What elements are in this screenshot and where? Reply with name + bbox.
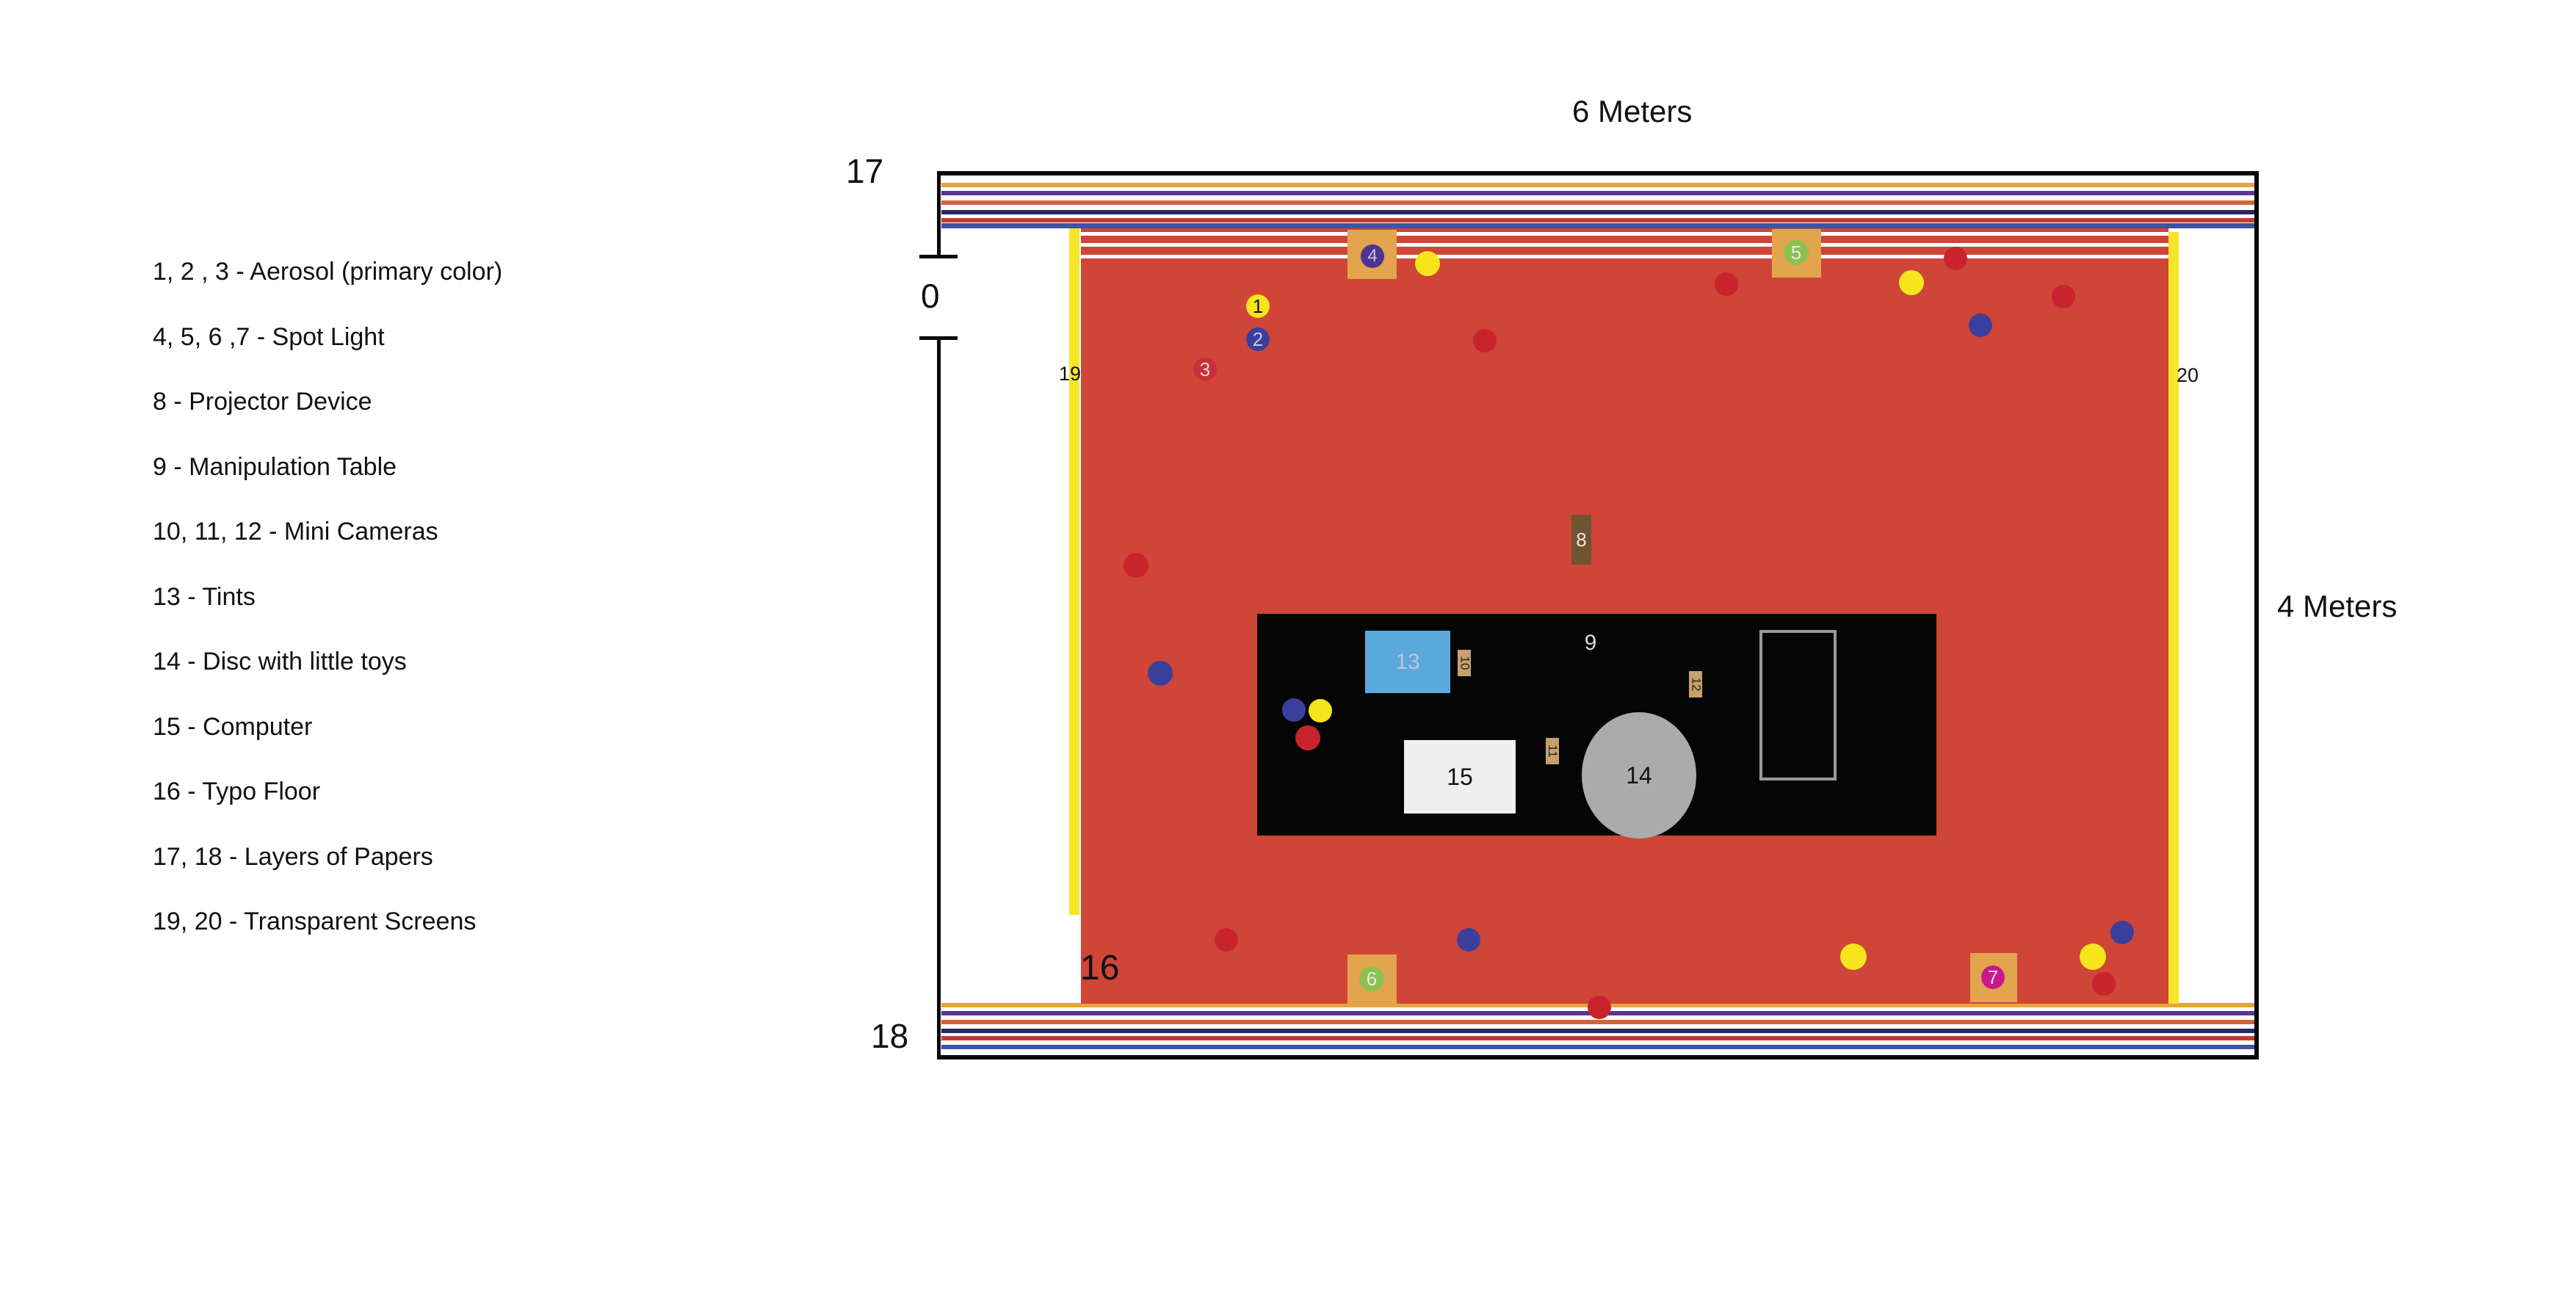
paper-stripe-top-red bbox=[941, 218, 2254, 222]
floor-dot-red bbox=[1473, 329, 1497, 352]
floor-dot-red bbox=[1215, 928, 1238, 952]
paper-stripe-top-purple bbox=[941, 191, 2254, 195]
zero-point-label: 0 bbox=[921, 276, 940, 316]
mini-camera-10: 10 bbox=[1458, 650, 1471, 676]
floor-dot-blue bbox=[1969, 314, 1992, 337]
legend-item-typo-floor: 16 - Typo Floor bbox=[153, 759, 711, 825]
paper-stripe-bottom-navy bbox=[941, 1029, 2254, 1033]
paper-stripe-top-blue bbox=[941, 223, 2254, 228]
screen-19-label: 19 bbox=[1059, 363, 1081, 385]
table-label-9: 9 bbox=[1576, 630, 1605, 656]
table-dot-yellow bbox=[1309, 699, 1332, 722]
legend-item-aerosol: 1, 2 , 3 - Aerosol (primary color) bbox=[153, 239, 711, 305]
floor-white-line-1 bbox=[1081, 232, 2168, 236]
installation-floor-plan-page: { "legend": { "items": [ "1, 2 , 3 - Aer… bbox=[0, 0, 2576, 1315]
paper-stripe-top-salmon bbox=[941, 200, 2254, 205]
transparent-screen-20 bbox=[2168, 232, 2179, 1004]
computer-15: 15 bbox=[1404, 740, 1516, 814]
legend: 1, 2 , 3 - Aerosol (primary color) 4, 5,… bbox=[153, 239, 711, 954]
frame-top-line bbox=[938, 171, 2259, 175]
frame-right-line bbox=[2254, 171, 2259, 1059]
floor-dot-red bbox=[1124, 553, 1148, 578]
table-dot-blue bbox=[1282, 698, 1306, 722]
aerosol-3: 3 bbox=[1193, 358, 1217, 381]
frame-left-line-upper bbox=[937, 171, 941, 258]
floor-dot-red bbox=[1715, 272, 1738, 296]
aerosol-2: 2 bbox=[1246, 327, 1270, 351]
floor-dot-yellow bbox=[1899, 270, 1924, 295]
floor-dot-yellow bbox=[2080, 943, 2106, 970]
transparent-screen-19 bbox=[1069, 228, 1079, 915]
paper-layer-18-label: 18 bbox=[871, 1016, 908, 1056]
floor-dot-blue bbox=[1457, 928, 1480, 952]
paper-stripe-bottom-salmon bbox=[941, 1020, 2254, 1024]
legend-item-disc: 14 - Disc with little toys bbox=[153, 629, 711, 695]
paper-stripe-bottom-red bbox=[941, 1036, 2254, 1040]
typo-floor-16-label: 16 bbox=[1080, 948, 1119, 988]
floor-dot-red bbox=[2092, 972, 2116, 996]
width-dimension-label: 6 Meters bbox=[1572, 94, 1692, 129]
floor-white-line-3 bbox=[1081, 255, 2168, 258]
floor-dot-yellow bbox=[1840, 943, 1867, 970]
aerosol-1: 1 bbox=[1246, 294, 1270, 318]
floor-dot-red bbox=[2052, 285, 2075, 308]
spot-light-4: 4 bbox=[1361, 244, 1384, 268]
legend-item-projector: 8 - Projector Device bbox=[153, 369, 711, 435]
spot-light-6: 6 bbox=[1359, 966, 1384, 991]
spot-light-5: 5 bbox=[1784, 240, 1809, 265]
paper-stripe-bottom-blue bbox=[941, 1045, 2254, 1049]
dimension-tick-upper bbox=[919, 255, 958, 258]
floor-dot-blue bbox=[2110, 921, 2134, 944]
floor-dot-red bbox=[1588, 996, 1611, 1019]
floor-dot-yellow bbox=[1415, 251, 1440, 276]
projector-device-8: 8 bbox=[1571, 515, 1591, 565]
mini-camera-11: 11 bbox=[1546, 738, 1559, 764]
legend-item-computer: 15 - Computer bbox=[153, 695, 711, 760]
frame-left-line-lower bbox=[937, 336, 941, 1059]
disc-with-toys-14: 14 bbox=[1582, 712, 1696, 838]
table-frame-rect bbox=[1759, 630, 1837, 780]
legend-item-tints: 13 - Tints bbox=[153, 565, 711, 630]
paper-stripe-top-orange bbox=[941, 183, 2254, 187]
table-dot-red bbox=[1295, 725, 1320, 750]
mini-camera-12: 12 bbox=[1689, 671, 1702, 698]
screen-20-label: 20 bbox=[2177, 364, 2199, 387]
floor-dot-blue bbox=[1148, 661, 1173, 686]
legend-item-table: 9 - Manipulation Table bbox=[153, 435, 711, 500]
frame-bottom-line bbox=[938, 1055, 2259, 1059]
paper-layer-17-label: 17 bbox=[846, 151, 883, 191]
legend-item-papers: 17, 18 - Layers of Papers bbox=[153, 825, 711, 890]
spot-light-7: 7 bbox=[1981, 966, 2005, 989]
legend-item-cameras: 10, 11, 12 - Mini Cameras bbox=[153, 499, 711, 565]
floor-plan-canvas: 1, 2 , 3 - Aerosol (primary color) 4, 5,… bbox=[0, 0, 2576, 1315]
height-dimension-label: 4 Meters bbox=[2277, 589, 2397, 624]
paper-stripe-top-navy bbox=[941, 210, 2254, 214]
tints-13: 13 bbox=[1365, 631, 1450, 693]
legend-item-screens: 19, 20 - Transparent Screens bbox=[153, 889, 711, 954]
floor-white-line-2 bbox=[1081, 243, 2168, 247]
floor-dot-red bbox=[1944, 247, 1967, 270]
legend-item-spotlight: 4, 5, 6 ,7 - Spot Light bbox=[153, 305, 711, 370]
